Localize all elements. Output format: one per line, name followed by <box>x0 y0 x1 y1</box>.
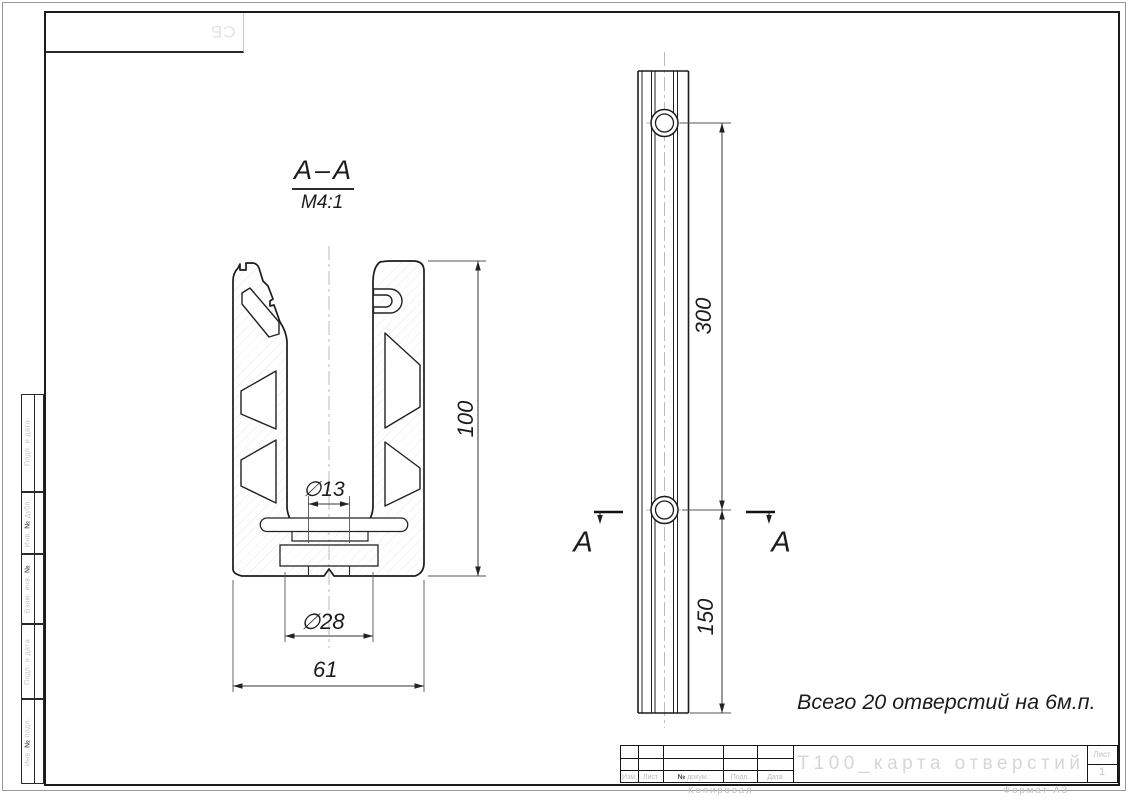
tb-col-podp: Подп. <box>723 774 757 781</box>
title-block-line <box>621 770 793 771</box>
stamp-label: Инв. № дубл. <box>25 492 32 554</box>
sheet-number: 1 <box>1087 764 1117 780</box>
dim-profile-height: 100 <box>453 401 479 438</box>
dim-profile-width: 61 <box>313 657 337 683</box>
stamp-box-podp-i-data-2: Подп. и дата <box>21 624 44 699</box>
document-title: Т100_карта отверстий <box>793 746 1089 782</box>
section-title: А–А <box>294 155 354 186</box>
stamp-divider <box>34 395 35 491</box>
stamp-box-vzam-inv: Взам. инв. № <box>21 554 44 624</box>
section-title-underline <box>292 188 354 190</box>
sheet-label: Лист <box>1087 746 1117 763</box>
sheet-inner-frame <box>44 11 1120 786</box>
format-label: Формат А3 <box>1003 785 1069 796</box>
dim-hole-diameter: ∅13 <box>303 477 345 502</box>
corner-stamp-text: СБ <box>210 21 235 41</box>
tb-col-dokum: № докум. <box>663 774 723 781</box>
stamp-divider <box>34 493 35 553</box>
dim-boss-diameter: ∅28 <box>301 609 345 635</box>
stamp-label: Подп. и дата <box>25 400 32 486</box>
kopiroval-label: Копировал <box>688 785 754 796</box>
title-block: Изм. Лист № докум. Подп. Дата Т100_карта… <box>620 745 1118 783</box>
stamp-label: Взам. инв. № <box>25 554 32 624</box>
stamp-divider <box>34 700 35 783</box>
drawing-sheet: СБ А–А М4:1 ∅13 ∅28 61 100 300 150 А А В… <box>0 0 1128 800</box>
tb-col-data: Дата <box>757 774 793 781</box>
stamp-label: Подп. и дата <box>25 625 32 699</box>
stamp-box-podp-i-data-1: Подп. и дата <box>21 394 44 492</box>
section-scale: М4:1 <box>301 192 343 214</box>
cut-letter-right: А <box>771 527 790 560</box>
cut-letter-left: А <box>573 527 592 560</box>
stamp-box-inv-dubl: Инв. № дубл. <box>21 492 44 554</box>
dim-hole-spacing: 300 <box>691 298 717 335</box>
stamp-divider <box>34 555 35 623</box>
corner-stamp-box: СБ <box>46 13 244 53</box>
note-text: Всего 20 отверстий на 6м.п. <box>797 690 1096 715</box>
stamp-divider <box>34 625 35 698</box>
tb-col-list: Лист <box>638 774 663 781</box>
title-block-line <box>621 758 793 759</box>
stamp-box-inv-podl: Инв. № подл. <box>21 699 44 784</box>
dim-end-distance: 150 <box>693 599 719 636</box>
tb-col-izm: Изм. <box>621 774 638 781</box>
stamp-label: Инв. № подл. <box>25 700 32 784</box>
